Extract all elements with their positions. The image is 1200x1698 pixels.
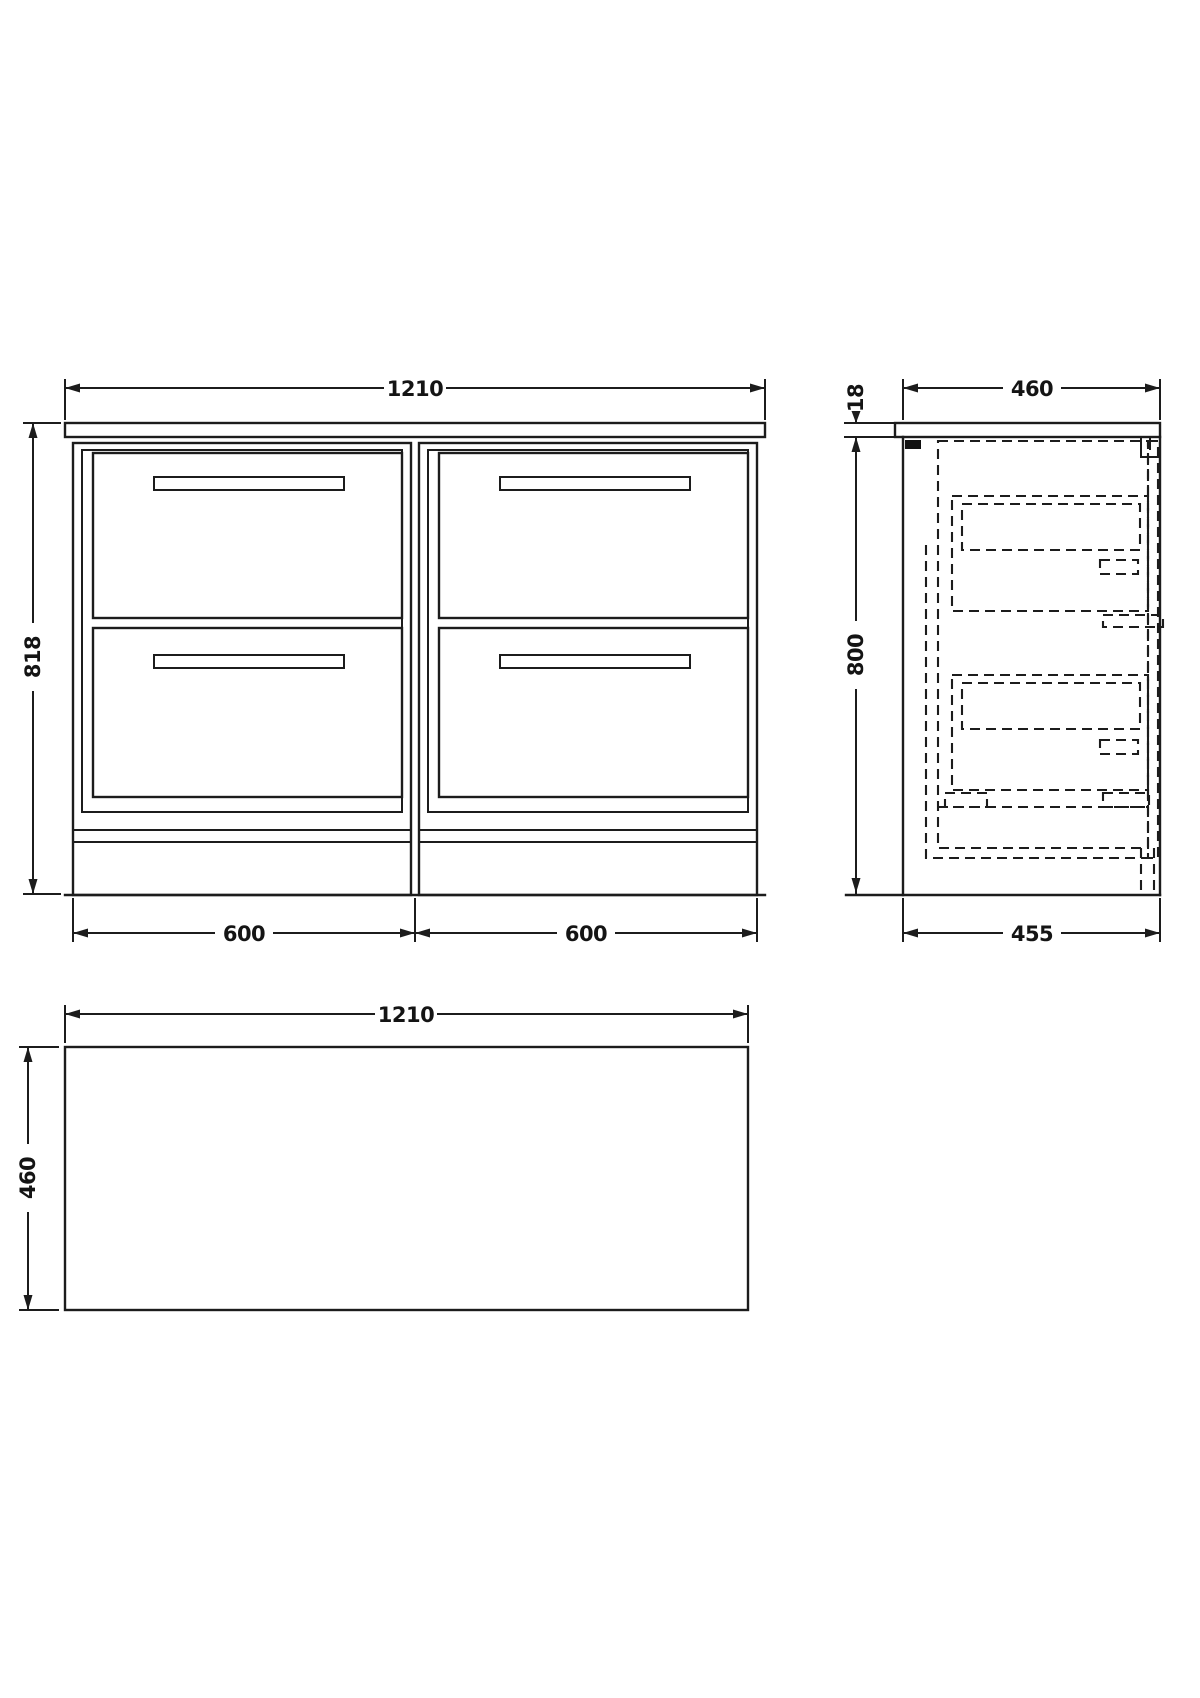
side-worktop — [895, 423, 1160, 437]
side-elevation-view — [846, 423, 1163, 895]
dim-side-base-depth-label: 455 — [1011, 922, 1053, 946]
arrowhead — [24, 1295, 33, 1310]
dim-plan-width: 1210 — [65, 1002, 748, 1042]
drawing-page: 1210 818 600 600 — [0, 0, 1200, 1698]
front-left-cabinet — [73, 443, 411, 895]
front-worktop — [65, 423, 765, 437]
dim-plan-depth-label: 460 — [16, 1157, 40, 1199]
arrowhead — [750, 384, 765, 393]
arrowhead — [733, 1010, 748, 1019]
dim-side-depth-label: 460 — [1011, 377, 1053, 401]
dim-side-depth: 460 — [903, 376, 1160, 419]
arrowhead — [24, 1047, 33, 1062]
dim-front-width-label: 1210 — [387, 377, 443, 401]
arrowhead — [65, 384, 80, 393]
arrowhead — [1145, 929, 1160, 938]
dim-front-width: 1210 — [65, 376, 765, 419]
arrowhead — [852, 437, 861, 452]
lower-drawer-inner-dashed — [962, 683, 1140, 729]
arrowhead — [29, 423, 38, 438]
front-right-cabinet — [419, 443, 757, 895]
arrowhead — [903, 384, 918, 393]
drawer-handle — [154, 655, 344, 668]
carcass-panel-dashed — [926, 545, 1148, 858]
front-elevation-view — [65, 423, 765, 895]
dim-front-height: 818 — [21, 423, 60, 894]
upper-drawer-inner-dashed — [962, 504, 1140, 550]
arrowhead — [1145, 384, 1160, 393]
dim-front-height-label: 818 — [21, 636, 45, 678]
arrowhead — [852, 878, 861, 893]
dim-plan-depth: 460 — [16, 1047, 58, 1310]
dim-side-base-depth: 455 — [903, 899, 1160, 946]
drawer-front — [439, 628, 748, 797]
dim-plan-width-label: 1210 — [378, 1003, 434, 1027]
plan-worktop-outline — [65, 1047, 748, 1310]
arrowhead — [65, 1010, 80, 1019]
drawer-handle — [154, 477, 344, 490]
drawer-handle — [500, 477, 690, 490]
mid-handle-dashed — [1103, 615, 1163, 627]
drawer-handle — [500, 655, 690, 668]
upper-drawer-box-dashed — [952, 496, 1148, 611]
lower-drawer-slide-dashed — [1100, 740, 1138, 754]
arrowhead — [400, 929, 415, 938]
dim-front-units: 600 600 — [73, 899, 757, 946]
arrowhead — [73, 929, 88, 938]
arrowhead — [742, 929, 757, 938]
dim-side-height: 800 — [844, 437, 868, 893]
foot-block-dashed — [1103, 793, 1149, 807]
cabinet-inner-frame — [428, 450, 748, 812]
drawer-front — [93, 628, 402, 797]
cabinet-inner-frame — [82, 450, 402, 812]
upper-drawer-slide-dashed — [1100, 560, 1138, 574]
foot-block-dashed — [945, 793, 987, 807]
arrowhead — [29, 879, 38, 894]
lower-drawer-box-dashed — [952, 675, 1148, 790]
dim-side-worktop-thickness-label: 18 — [844, 384, 868, 412]
dim-front-right-unit-label: 600 — [565, 922, 607, 946]
carcass-outline-dashed — [938, 441, 1148, 848]
dim-side-worktop-thickness: 18 — [844, 384, 899, 437]
plan-view — [65, 1047, 748, 1310]
arrowhead — [415, 929, 430, 938]
worktop-seal-strip — [905, 440, 921, 449]
arrowhead — [903, 929, 918, 938]
dim-side-height-label: 800 — [844, 634, 868, 676]
side-hidden-detail — [926, 441, 1163, 893]
technical-drawing-canvas: 1210 818 600 600 — [0, 0, 1200, 1698]
dim-front-left-unit-label: 600 — [223, 922, 265, 946]
